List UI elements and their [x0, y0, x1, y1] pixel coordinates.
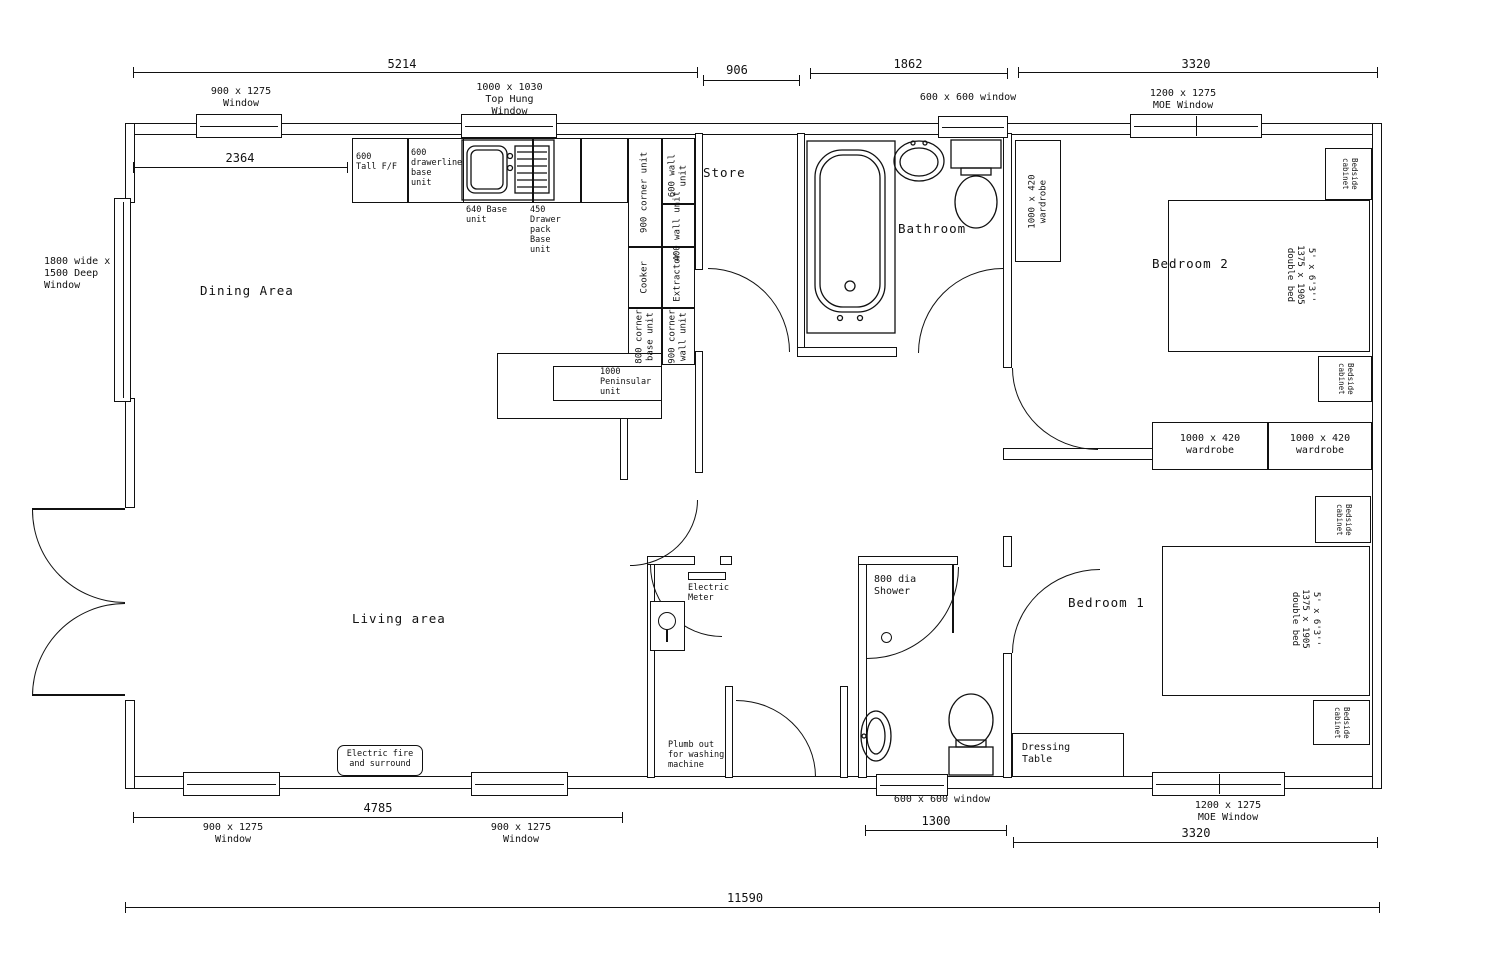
label-store: Store [703, 166, 746, 181]
floorplan-canvas: { "rooms": { "dining": "Dining Area", "l… [0, 0, 1500, 953]
dim-1300: 1300 [922, 814, 951, 828]
dim-906: 906 [726, 63, 748, 77]
boiler-pipe [666, 630, 668, 642]
label-cooker: Cooker [640, 249, 651, 305]
electric-meter-box [688, 572, 726, 580]
patio-door-leaf-bottom [32, 694, 125, 696]
entry-door-arc [736, 700, 816, 777]
label-dining-area: Dining Area [200, 284, 294, 299]
hall-bedroom-wall-lower [1003, 653, 1012, 778]
patio-door-arc-bottom [32, 603, 125, 696]
outer-wall-left-lower [125, 700, 135, 789]
kitchen-stub-wall [620, 415, 628, 480]
label-peninsular: 1000 Peninsular unit [600, 367, 670, 397]
bathroom-basin [891, 138, 949, 186]
label-corner-900: 900 corner unit [640, 142, 651, 242]
bathroom-door-arc [918, 268, 1003, 353]
window-bottom-left-1 [183, 772, 280, 796]
bedroom2-door-arc [1012, 368, 1098, 450]
label-base-640: 640 Base unit [466, 205, 514, 225]
window-shower [876, 774, 948, 796]
label-corner-base-800: 800 corner base unit [634, 307, 655, 367]
label-bedside-3: Bedside cabinet [1334, 497, 1352, 543]
boiler-symbol [658, 612, 676, 630]
label-shower: 800 dia Shower [874, 574, 934, 598]
label-window-bottom-left-1: 900 x 1275 Window [178, 822, 288, 846]
label-bed-bedroom1: 5' x 6'3'' 1375 x 1905 double bed [1289, 559, 1321, 679]
dim-5214: 5214 [388, 57, 417, 71]
dim-line-1862 [810, 73, 1008, 74]
patio-door-arc-top [32, 510, 125, 603]
window-top-left [196, 114, 282, 138]
label-dressing-table: Dressing Table [1022, 742, 1102, 766]
window-moe-bottom [1152, 772, 1285, 796]
ensuite-basin [859, 707, 899, 765]
bathroom-bottom-wall [797, 347, 897, 357]
dim-3320-bottom: 3320 [1182, 826, 1211, 840]
dim-line-3320-bottom [1013, 842, 1378, 843]
window-left-bay [114, 198, 131, 402]
label-window-moe-bottom: 1200 x 1275 MOE Window [1162, 800, 1294, 824]
dim-line-11590 [125, 907, 1380, 908]
window-bathroom [938, 116, 1008, 138]
label-wardrobe-vertical: 1000 x 420 wardrobe [1027, 143, 1048, 261]
dim-line-2364 [133, 167, 348, 168]
label-bedroom1: Bedroom 1 [1068, 596, 1145, 611]
label-window-bottom-left-2: 900 x 1275 Window [466, 822, 576, 846]
label-bathroom: Bathroom [898, 222, 966, 237]
label-plumb-out: Plumb out for washing machine [668, 740, 734, 770]
label-electric-fire: Electric fire and surround [339, 749, 421, 769]
shower-room-top-wall [858, 556, 958, 565]
label-bed-bedroom2: 5' x 6'3'' 1375 x 1905 double bed [1284, 215, 1316, 335]
closet-top-wall-b [720, 556, 732, 565]
label-window-moe-top: 1200 x 1275 MOE Window [1118, 88, 1248, 112]
bed-bedroom1 [1162, 546, 1370, 696]
label-drawerline: 600 drawerline base unit [411, 148, 463, 188]
dim-line-3320-top [1018, 72, 1378, 73]
bed-bedroom2 [1168, 200, 1370, 352]
label-bedroom2: Bedroom 2 [1152, 257, 1229, 272]
label-bedside-2: Bedside cabinet [1336, 356, 1354, 402]
outer-wall-right [1372, 123, 1382, 789]
dim-2364: 2364 [226, 151, 255, 165]
label-extractor: Extractor [673, 248, 684, 306]
dim-line-1300 [865, 830, 1007, 831]
dim-line-5214 [133, 72, 698, 73]
label-electric-meter: Electric Meter [688, 583, 738, 603]
window-top-hung [461, 114, 557, 138]
dim-3320-top: 3320 [1182, 57, 1211, 71]
ensuite-toilet [944, 692, 998, 780]
label-window-shower: 600 x 600 window [872, 794, 1012, 806]
label-window-top-left: 900 x 1275 Window [182, 86, 300, 110]
label-living-area: Living area [352, 612, 446, 627]
bedroom1-door-arc [1012, 569, 1100, 653]
bath [806, 140, 896, 334]
label-tall-ff: 600 Tall F/F [356, 152, 406, 172]
bathroom-toilet [948, 138, 1004, 232]
dim-1862: 1862 [894, 57, 923, 71]
lobby-right-wall [840, 686, 848, 778]
dim-11590: 11590 [727, 891, 763, 905]
dim-line-906 [703, 80, 800, 81]
dim-4785: 4785 [364, 801, 393, 815]
outer-wall-left-mid [125, 398, 135, 508]
shower-door-leaf [952, 565, 954, 633]
label-wardrobe-right: 1000 x 420 wardrobe [1268, 433, 1372, 457]
shower-drain [881, 632, 892, 643]
label-window-left-bay: 1800 wide x 1500 Deep Window [44, 256, 124, 291]
hall-bedroom-wall-upper [1003, 133, 1012, 368]
store-left-wall-upper [695, 133, 703, 270]
bathroom-left-wall [797, 133, 805, 357]
label-window-top-hung: 1000 x 1030 Top Hung Window [452, 82, 567, 117]
bedroom-divider-wall [1003, 448, 1155, 460]
kitchen-sink [461, 139, 555, 201]
hall-bedroom-wall-mid [1003, 536, 1012, 567]
label-wardrobe-left: 1000 x 420 wardrobe [1152, 433, 1268, 457]
label-drawer-450: 450 Drawer pack Base unit [530, 205, 572, 255]
dim-line-4785 [133, 817, 623, 818]
label-window-bathroom: 600 x 600 window [898, 92, 1038, 104]
patio-door-leaf-top [32, 508, 125, 510]
window-bottom-left-2 [471, 772, 568, 796]
label-bedside-4: Bedside cabinet [1332, 700, 1350, 746]
store-door-arc [708, 268, 790, 352]
store-left-wall-lower [695, 351, 703, 473]
label-corner-wall-900: 900 corner wall unit [667, 307, 688, 367]
unit-filler [581, 138, 628, 203]
label-bedside-1: Bedside cabinet [1340, 151, 1358, 197]
window-moe-top [1130, 114, 1262, 138]
